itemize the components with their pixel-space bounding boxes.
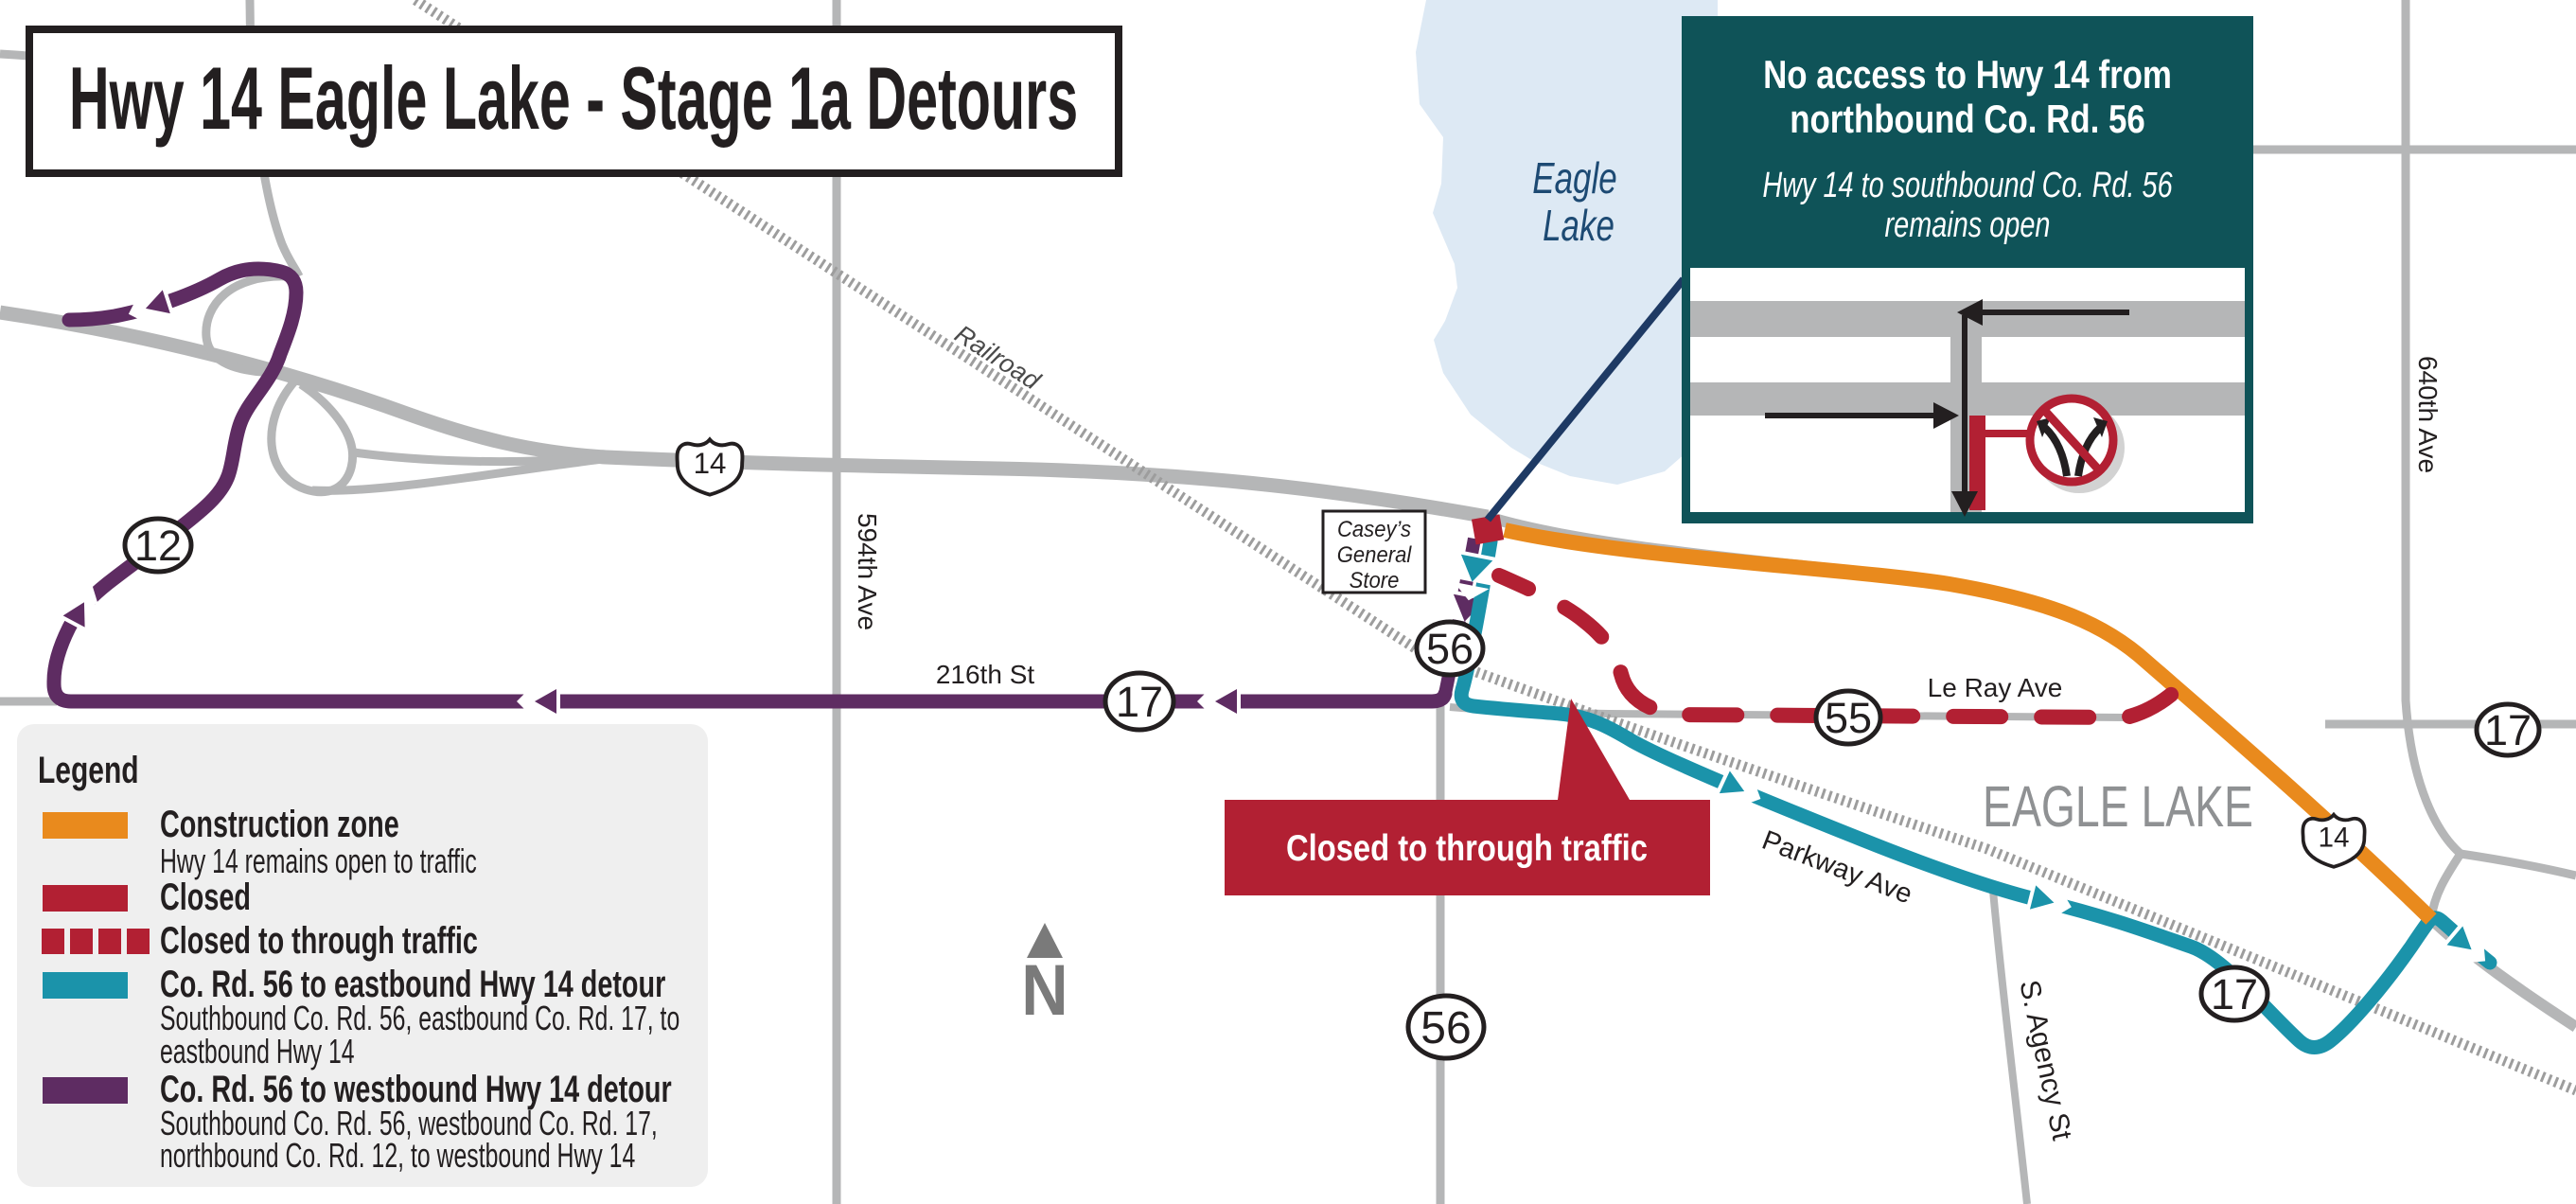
svg-text:Hwy 14 to southbound Co. Rd. 5: Hwy 14 to southbound Co. Rd. 56 bbox=[1762, 165, 2172, 205]
svg-text:216th St: 216th St bbox=[936, 660, 1035, 689]
svg-text:56: 56 bbox=[1420, 1003, 1471, 1053]
svg-text:EAGLE LAKE: EAGLE LAKE bbox=[1983, 775, 2253, 840]
svg-text:Le Ray Ave: Le Ray Ave bbox=[1928, 673, 2063, 702]
svg-text:17: 17 bbox=[2211, 970, 2258, 1018]
svg-text:Legend: Legend bbox=[38, 750, 139, 791]
svg-text:General: General bbox=[1337, 541, 1412, 567]
svg-text:northbound Co. Rd. 12, to west: northbound Co. Rd. 12, to westbound Hwy … bbox=[160, 1136, 635, 1175]
svg-text:No access to Hwy 14 from: No access to Hwy 14 from bbox=[1763, 53, 2172, 97]
svg-text:Casey’s: Casey’s bbox=[1337, 516, 1412, 541]
svg-text:640th Ave: 640th Ave bbox=[2413, 356, 2443, 473]
svg-text:17: 17 bbox=[1116, 678, 1163, 726]
svg-text:14: 14 bbox=[694, 447, 727, 480]
svg-text:594th Ave: 594th Ave bbox=[853, 513, 882, 630]
svg-text:55: 55 bbox=[1825, 694, 1872, 742]
svg-text:eastbound Hwy 14: eastbound Hwy 14 bbox=[160, 1032, 355, 1071]
svg-text:Store: Store bbox=[1350, 567, 1400, 593]
svg-text:Construction zone: Construction zone bbox=[160, 803, 399, 845]
svg-text:Hwy 14 Eagle Lake - Stage 1a D: Hwy 14 Eagle Lake - Stage 1a Detours bbox=[69, 48, 1078, 148]
svg-text:northbound Co. Rd. 56: northbound Co. Rd. 56 bbox=[1790, 97, 2144, 142]
svg-text:56: 56 bbox=[1426, 625, 1473, 673]
svg-text:14: 14 bbox=[2319, 823, 2350, 854]
svg-text:12: 12 bbox=[134, 522, 182, 570]
svg-text:Hwy 14 remains open to traffic: Hwy 14 remains open to traffic bbox=[160, 841, 477, 880]
svg-text:remains open: remains open bbox=[1885, 204, 2051, 245]
svg-text:Lake: Lake bbox=[1543, 201, 1614, 250]
svg-text:Closed to through traffic: Closed to through traffic bbox=[1286, 826, 1648, 868]
svg-text:Closed: Closed bbox=[160, 876, 251, 918]
svg-text:Closed to through traffic: Closed to through traffic bbox=[160, 919, 478, 962]
svg-text:17: 17 bbox=[2484, 706, 2532, 754]
svg-text:Eagle: Eagle bbox=[1532, 153, 1616, 203]
svg-text:N: N bbox=[1021, 951, 1067, 1031]
